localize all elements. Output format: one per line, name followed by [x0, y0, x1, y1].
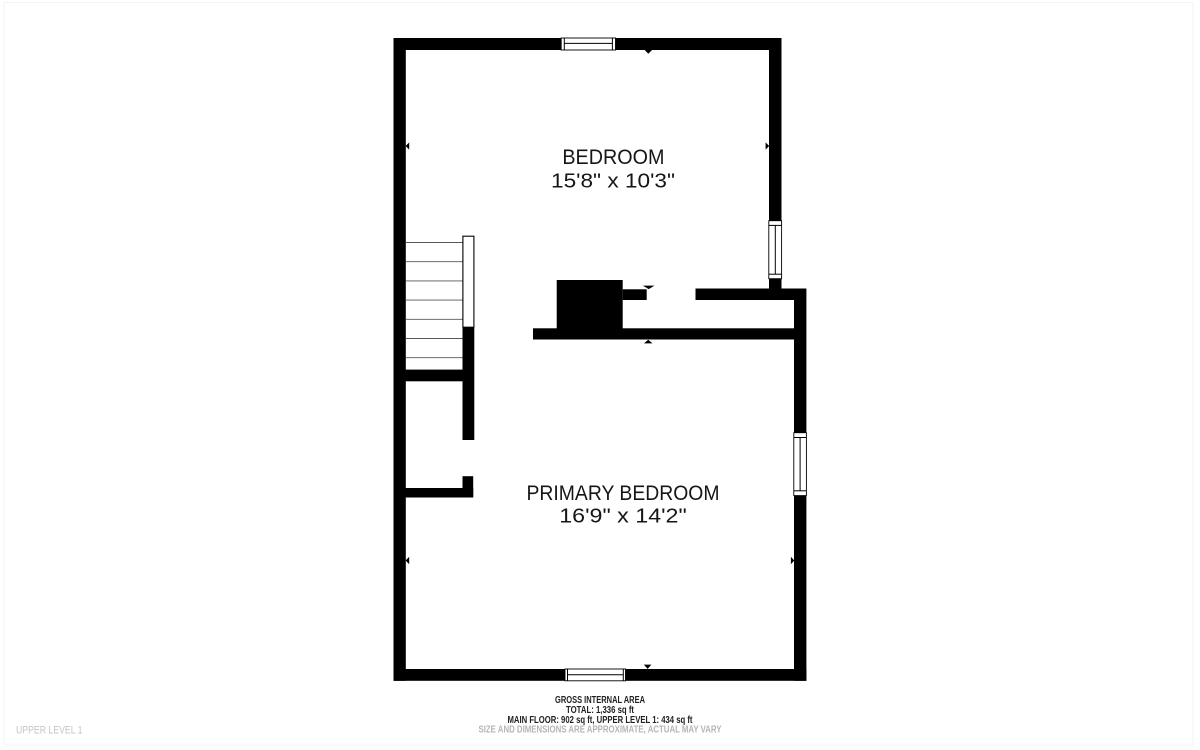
svg-text:PRIMARY BEDROOM: PRIMARY BEDROOM	[527, 482, 720, 505]
svg-text:UPPER LEVEL 1: UPPER LEVEL 1	[16, 725, 83, 737]
svg-text:SIZE AND DIMENSIONS ARE APPROX: SIZE AND DIMENSIONS ARE APPROXIMATE, ACT…	[479, 725, 722, 736]
svg-text:BEDROOM: BEDROOM	[562, 146, 664, 169]
svg-text:16'9" x 14'2": 16'9" x 14'2"	[559, 505, 687, 528]
svg-text:15'8" x 10'3": 15'8" x 10'3"	[551, 169, 675, 192]
